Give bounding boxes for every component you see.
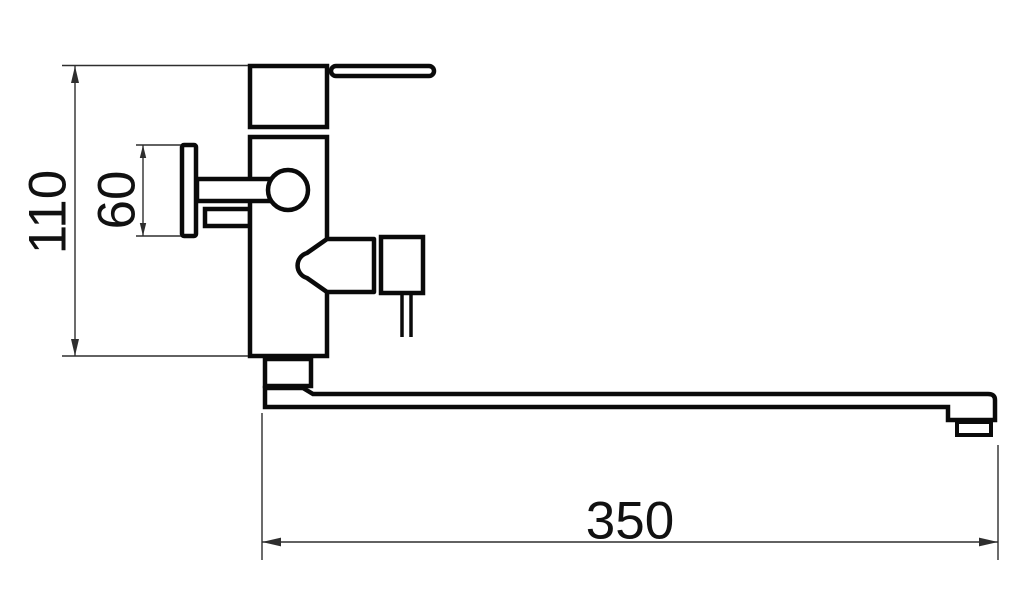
- faucet-outline: [182, 66, 995, 435]
- height-arrow-up: [71, 66, 79, 83]
- connector-dimension-label: 60: [88, 171, 147, 230]
- spout-arrow-left: [262, 538, 281, 547]
- dimension-connector: 60: [88, 145, 182, 236]
- technical-drawing-canvas: 110 60 350: [0, 0, 1030, 589]
- wall-flange: [182, 145, 196, 236]
- lower-bracket: [205, 209, 250, 226]
- dimension-spout: 350: [262, 413, 998, 560]
- height-arrow-down: [71, 339, 79, 356]
- connector-arrow-up: [140, 145, 146, 158]
- diverter-knob: [381, 237, 423, 293]
- spout-dimension-label: 350: [586, 492, 674, 551]
- eccentric-arm: [197, 179, 270, 201]
- spout-arrow-right: [979, 538, 998, 547]
- outlet-connector: [265, 359, 311, 386]
- cartridge-cap: [250, 66, 327, 127]
- lever-handle: [331, 66, 434, 76]
- spout-tube: [265, 388, 995, 420]
- aerator: [957, 422, 991, 435]
- drawing-page: 110 60 350: [0, 0, 1030, 589]
- connector-nut-circle: [268, 170, 308, 210]
- height-dimension-label: 110: [19, 170, 78, 255]
